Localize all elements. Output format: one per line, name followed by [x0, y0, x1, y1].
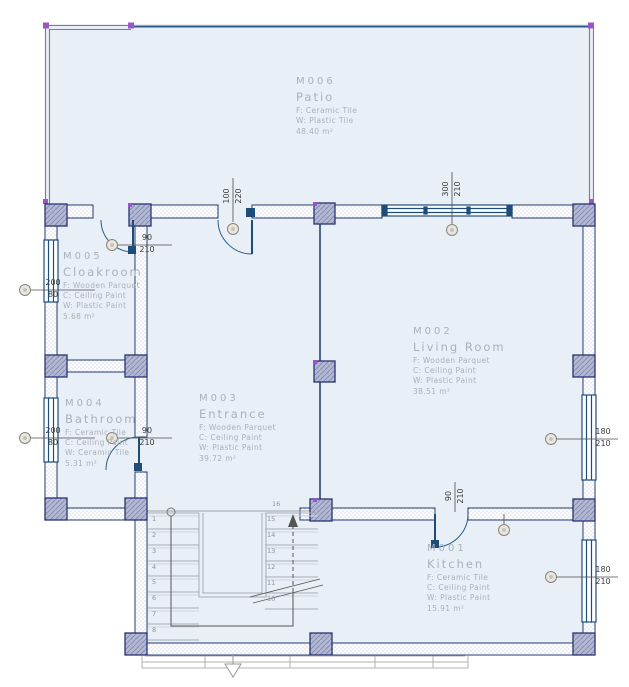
stair-number: 1 [152, 516, 156, 523]
stair-number: 2 [152, 532, 156, 539]
floor-plan-canvas[interactable] [0, 0, 629, 687]
dim-width: 200 [38, 277, 68, 289]
dim-width: 90 [443, 479, 455, 513]
dim-width: 90 [132, 232, 162, 244]
dim-width: 300 [440, 172, 452, 206]
dim-height: 80 [38, 437, 68, 449]
living-room-top-window [382, 205, 512, 216]
stair-number: 15 [267, 516, 275, 523]
stair-number: 5 [152, 579, 156, 586]
dim-height: 210 [588, 438, 618, 450]
dimension-cloakroom-door: 90 210 [132, 232, 162, 256]
stair-number: 4 [152, 564, 156, 571]
dimension-bathroom-window: 200 80 [38, 425, 68, 449]
dim-width: 100 [221, 179, 233, 213]
dim-width: 90 [132, 425, 162, 437]
stair-number: 3 [152, 548, 156, 555]
dimension-kitchen-side-window: 180 210 [588, 564, 618, 588]
stair-top-number: 16 [272, 501, 280, 508]
stair-number: 11 [267, 580, 275, 587]
dim-width: 180 [588, 426, 618, 438]
dim-height: 210 [132, 244, 162, 256]
dimension-bathroom-door: 90 210 [132, 425, 162, 449]
entry-arrow [225, 655, 241, 677]
entry-porch [142, 655, 468, 677]
stair-number: 10 [267, 596, 275, 603]
dim-height: 220 [233, 179, 245, 213]
dim-height: 210 [452, 172, 464, 206]
dimension-kitchen-door: 90 210 [443, 479, 467, 513]
stair-number: 13 [267, 548, 275, 555]
dimension-living-room-top-window: 300 210 [440, 172, 464, 206]
dimension-cloakroom-window: 200 80 [38, 277, 68, 301]
stair-number: 6 [152, 595, 156, 602]
stair-number: 8 [152, 627, 156, 634]
dim-width: 180 [588, 564, 618, 576]
dim-height: 210 [455, 479, 467, 513]
stair-number: 7 [152, 611, 156, 618]
dim-height: 210 [132, 437, 162, 449]
floor-plan-page: M006 Patio F: Ceramic Tile W: Plastic Ti… [0, 0, 629, 687]
dimension-living-room-side-window: 180 210 [588, 426, 618, 450]
dim-width: 200 [38, 425, 68, 437]
stair-number: 14 [267, 532, 275, 539]
dim-height: 80 [38, 289, 68, 301]
stair-number: 12 [267, 564, 275, 571]
dim-height: 210 [588, 576, 618, 588]
dimension-entrance-door: 100 220 [221, 179, 245, 213]
